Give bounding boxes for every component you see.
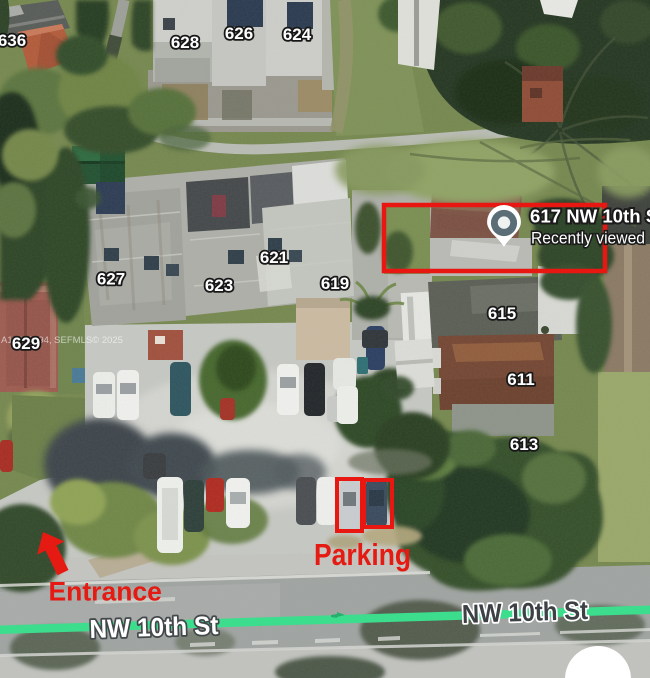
svg-text:615: 615 xyxy=(488,304,516,323)
svg-text:Recently viewed: Recently viewed xyxy=(531,230,645,248)
svg-text:Parking: Parking xyxy=(314,538,411,572)
svg-text:NW 10th St: NW 10th St xyxy=(461,595,588,629)
svg-text:Entrance: Entrance xyxy=(49,577,162,607)
svg-text:619: 619 xyxy=(321,274,349,293)
svg-text:613: 613 xyxy=(510,435,538,454)
svg-text:624: 624 xyxy=(283,25,312,44)
svg-text:628: 628 xyxy=(171,33,199,52)
svg-text:629: 629 xyxy=(12,334,40,353)
svg-text:623: 623 xyxy=(205,276,233,295)
svg-text:636: 636 xyxy=(0,31,26,50)
svg-text:627: 627 xyxy=(97,270,125,289)
svg-text:NW 10th St: NW 10th St xyxy=(89,610,219,644)
svg-text:611: 611 xyxy=(507,370,534,389)
svg-text:621: 621 xyxy=(260,248,288,267)
svg-text:626: 626 xyxy=(225,24,253,43)
svg-text:617 NW 10th St: 617 NW 10th St xyxy=(530,206,650,227)
